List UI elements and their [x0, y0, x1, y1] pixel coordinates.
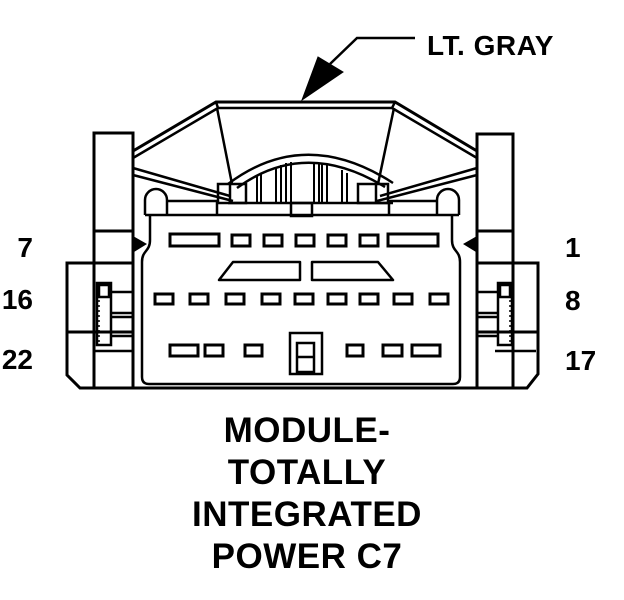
pin-slot: [296, 235, 314, 246]
pin-slot: [295, 294, 313, 304]
pin-slot: [170, 345, 198, 356]
wedge-right: [463, 236, 477, 252]
wedge-left: [133, 236, 147, 252]
clip-head: [99, 285, 109, 297]
pin-number-22: 22: [0, 344, 33, 376]
clip-lines: [477, 292, 536, 351]
mount-clip-left: [95, 283, 133, 351]
face-tab-left: [145, 189, 167, 215]
pin-number-1: 1: [565, 232, 615, 264]
pin-slot: [412, 345, 440, 356]
pin-slot: [232, 235, 250, 246]
pin-slot: [394, 294, 412, 304]
pin-slot: [328, 294, 346, 304]
clip-lines: [95, 292, 133, 351]
color-callout-label: LT. GRAY: [427, 30, 554, 62]
pin-number-17: 17: [565, 345, 615, 377]
pin-number-16: 16: [0, 284, 33, 316]
caption-line-1: MODULE-: [112, 410, 502, 452]
pin-slot: [190, 294, 208, 304]
clip-head: [500, 285, 510, 297]
callout-leader: [302, 38, 415, 100]
leader-arrowhead: [302, 57, 343, 100]
pin-slot: [388, 234, 438, 246]
keyway-right: [312, 262, 393, 280]
pin-slot-row-3: [170, 333, 440, 374]
latch-ribs: [257, 162, 347, 203]
caption-line-2: TOTALLY: [112, 452, 502, 494]
pin-slot: [155, 294, 173, 304]
pin-slot: [205, 345, 223, 356]
latch-arch: [218, 155, 393, 216]
pin-slot: [430, 294, 448, 304]
pin-slot-row-1: [170, 234, 438, 246]
pin-slot: [360, 294, 378, 304]
pin-slot-row-2: [155, 294, 448, 304]
connector-diagram-page: LT. GRAY 7 16 22 1 8 17 MODULE- TOTALLY …: [0, 0, 624, 600]
keyway-slots: [219, 262, 393, 280]
connector-caption: MODULE- TOTALLY INTEGRATED POWER C7: [112, 410, 502, 578]
caption-line-3: INTEGRATED: [112, 494, 502, 536]
arch-outer: [228, 155, 393, 184]
pin-slot: [226, 294, 244, 304]
pin-number-8: 8: [565, 285, 615, 317]
pin-slot: [170, 234, 219, 246]
face-wedges: [133, 236, 477, 252]
mount-clip-right: [477, 283, 536, 351]
pin-slot: [328, 235, 346, 246]
pin-number-7: 7: [0, 232, 33, 264]
leader-line: [330, 38, 415, 64]
pin-slot: [347, 345, 363, 356]
pin-slot: [360, 235, 378, 246]
center-key-tower: [290, 333, 322, 374]
pin-slot: [383, 345, 402, 356]
caption-line-4: POWER C7: [112, 536, 502, 578]
pin-slot: [264, 235, 282, 246]
housing-wall-lines: [67, 151, 538, 388]
pin-slot: [262, 294, 280, 304]
pin-slot: [245, 345, 262, 356]
hood-lines: [133, 102, 477, 158]
keyway-left: [219, 262, 300, 280]
face-tab-right: [437, 189, 459, 215]
